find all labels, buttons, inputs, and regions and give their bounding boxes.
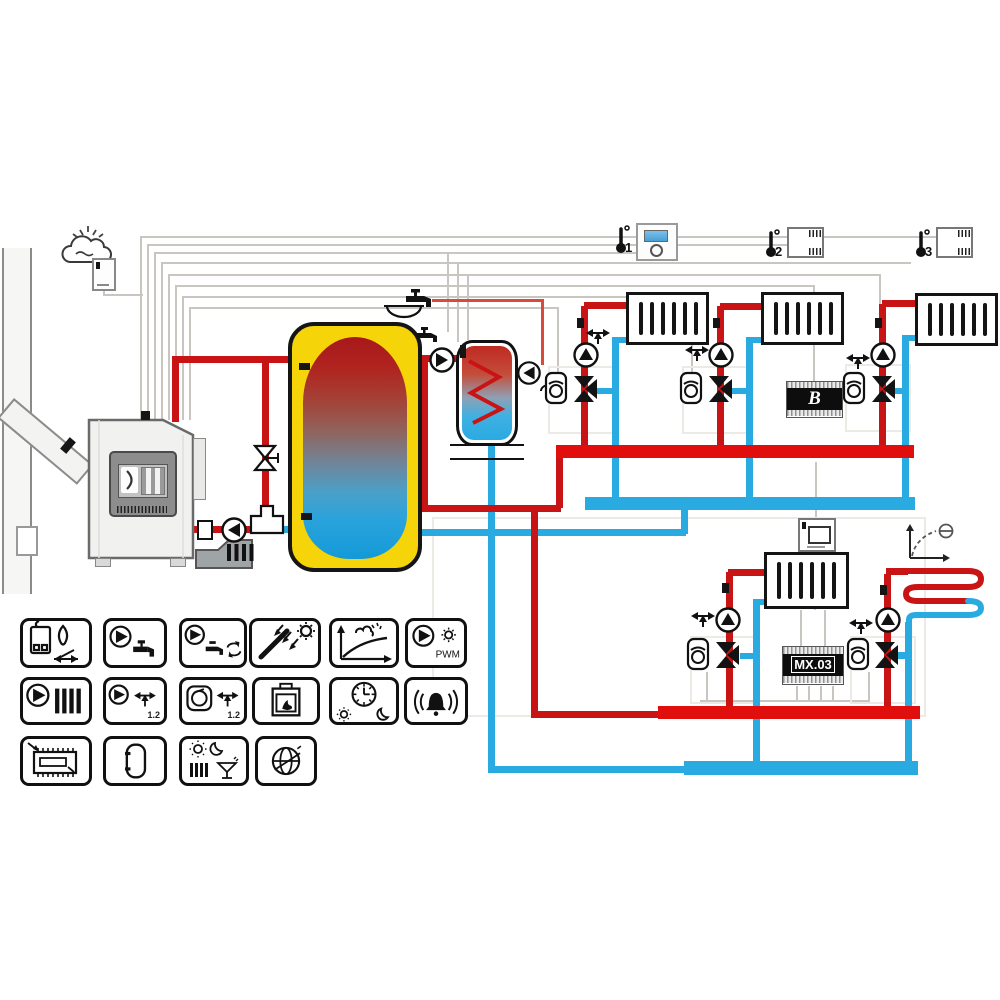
pipe-sensor [875,318,882,328]
room-thermostat-2 [787,227,824,258]
return-pipe [905,622,912,768]
control-wire [140,236,142,420]
circuit5-mixing-valve [870,640,900,670]
legend-icon-heating-circuit-pump [20,677,92,725]
circuit2-actuator [679,371,703,405]
return-pipe [420,529,686,536]
return-pipe [746,338,753,500]
grate-icon [227,544,255,561]
legend-icon-mixer-actuator: 1.2 [179,677,247,725]
dhw-coil [459,343,515,443]
supply-pipe [172,356,302,363]
panel-line [807,546,825,548]
circuit3-actuator [842,371,866,405]
radiator-4 [764,552,849,609]
circuit5-pump [874,606,902,634]
dhw-circulation-pipe [541,299,544,365]
circuit2-mixing-valve [704,374,734,404]
radiator-1 [626,292,709,345]
return-manifold-lower [684,761,918,775]
sensor-notch [96,262,100,269]
control-wire [140,236,948,238]
control-wire [147,244,800,246]
legend-icon-dhw-circulation-pump [179,618,247,668]
thermostat-3-number: 3 [925,244,932,259]
legend-icon-mixer-pump: 1.2 [103,677,167,725]
boiler-flue-sensor [141,411,150,420]
chimney-cleanout [16,526,38,556]
legend-icon-boiler-flame-control [20,618,92,668]
vent-icon [690,611,716,627]
room-panel-screen [644,230,668,242]
circuit2-pump [707,341,735,369]
legend-icon-pwm-pump: PWM [405,618,467,668]
terminal-block [809,248,821,255]
lower-section-outline [432,517,926,717]
dhw-pump [428,346,456,374]
buffer-sensor-top [299,363,310,370]
supply-pipe [421,362,428,508]
circuit1-riser [584,302,630,309]
return-pipe [902,336,909,500]
pipe-sensor [577,318,584,328]
circuit1-pump [572,341,600,369]
pipe-sensor [880,585,887,595]
room-panel-lower [798,518,836,552]
room-panel-1 [636,223,678,261]
return-pipe [740,653,755,659]
control-wire [161,262,911,264]
legend-icon-expansion-module [20,736,92,786]
boiler-side-flange [193,438,206,500]
boiler-foot [95,558,111,567]
pipe-sensor [722,583,729,593]
module-b: B [786,381,843,418]
pwm-label: PWM [436,649,460,660]
controller-screen-right [141,467,165,495]
supply-manifold [556,445,914,458]
buffer-sensor-bottom [301,513,312,520]
supply-pipe [421,505,561,512]
heating-curve-icon [900,518,964,564]
module-mx03: MX.03 [782,646,844,685]
control-wire [467,274,469,340]
radiator-2 [761,292,844,345]
return-pipe [488,766,688,773]
return-pipe [612,338,619,500]
legend-icon-time-programs [329,677,399,725]
terminal-block [958,248,970,255]
boiler-pump [220,516,248,544]
thermostat-2-number: 2 [775,244,782,259]
control-wire [175,285,813,287]
circuit2-riser [720,303,765,310]
pipe-sensor [713,318,720,328]
buffer-tank [288,322,422,572]
control-wire [447,252,449,332]
controller-screen [118,464,168,498]
buffer-stratification [303,337,407,559]
control-wire [147,244,149,420]
circuit4-pump [714,606,742,634]
legend-icon-alarm [404,677,468,725]
control-wire [168,274,170,420]
controller-terminals [117,506,167,513]
vent-icon [845,353,871,369]
panel-display [808,526,831,544]
return-pipe [681,508,688,534]
supply-manifold-lower [658,706,920,719]
control-wire [154,252,649,254]
tap-icon-small [415,324,443,344]
bypass-valve [251,444,279,472]
return-manifold [585,497,915,510]
controller-screen-left [121,467,138,493]
circuit5-actuator [846,637,870,671]
supply-pipe [531,711,665,718]
supply-pipe [172,362,179,422]
legend-icon-weather-heating-curve [329,618,399,668]
control-wire [154,252,156,420]
module-mx03-label: MX.03 [791,656,835,673]
room-thermostat-3 [936,227,973,258]
check-valve [197,520,213,540]
boiler-controller [109,451,177,517]
sensor-line [97,284,109,286]
radiator-3 [915,293,998,346]
control-wire [189,307,191,420]
terminal-block [958,230,970,237]
dhw-circulation-pipe [432,299,544,302]
control-wire [189,307,557,309]
control-wire [457,262,459,342]
control-wire [161,262,163,420]
circuit4-mixing-valve [711,640,741,670]
legend-icon-fuel-feeder-boiler [252,677,320,725]
circuit3-mixing-valve [867,374,897,404]
legend-icon-internet-module [255,736,317,786]
control-wire [103,294,143,296]
hydraulic-scheme: B MX.03 1 2 3 [0,0,1000,1000]
tee-fitting [250,505,284,535]
control-wire [815,462,817,519]
circuit1-mixing-valve [569,374,599,404]
room-panel-knob [650,244,663,257]
control-wire [557,307,559,373]
dhw-stand [450,444,524,460]
control-wire [168,274,879,276]
legend-icon-solar-collector [249,618,321,668]
thermostat-1-number: 1 [625,240,632,255]
dhw-sensor [460,345,466,358]
circuit3-pump [869,341,897,369]
tap-icon [404,286,438,310]
legend-icon-dhw-pump-tap [103,618,167,668]
legend-icon-work-modes [179,736,249,786]
panel-notch [802,522,806,529]
circuit4-actuator [686,637,710,671]
outdoor-sensor [92,258,116,291]
legend-icon-buffer-tank [103,736,167,786]
module-b-label: B [787,388,842,410]
bypass-pipe [262,363,269,513]
supply-pipe [531,508,538,714]
return-pipe [488,436,495,773]
terminal-block [809,230,821,237]
circuit1-actuator [544,371,568,405]
mixer-count-label: 1.2 [147,710,160,720]
supply-pipe [556,450,563,508]
boiler-foot [170,558,186,567]
vent-icon [848,618,874,634]
return-pipe [753,600,760,766]
mixer-count-label: 1.2 [227,710,240,720]
